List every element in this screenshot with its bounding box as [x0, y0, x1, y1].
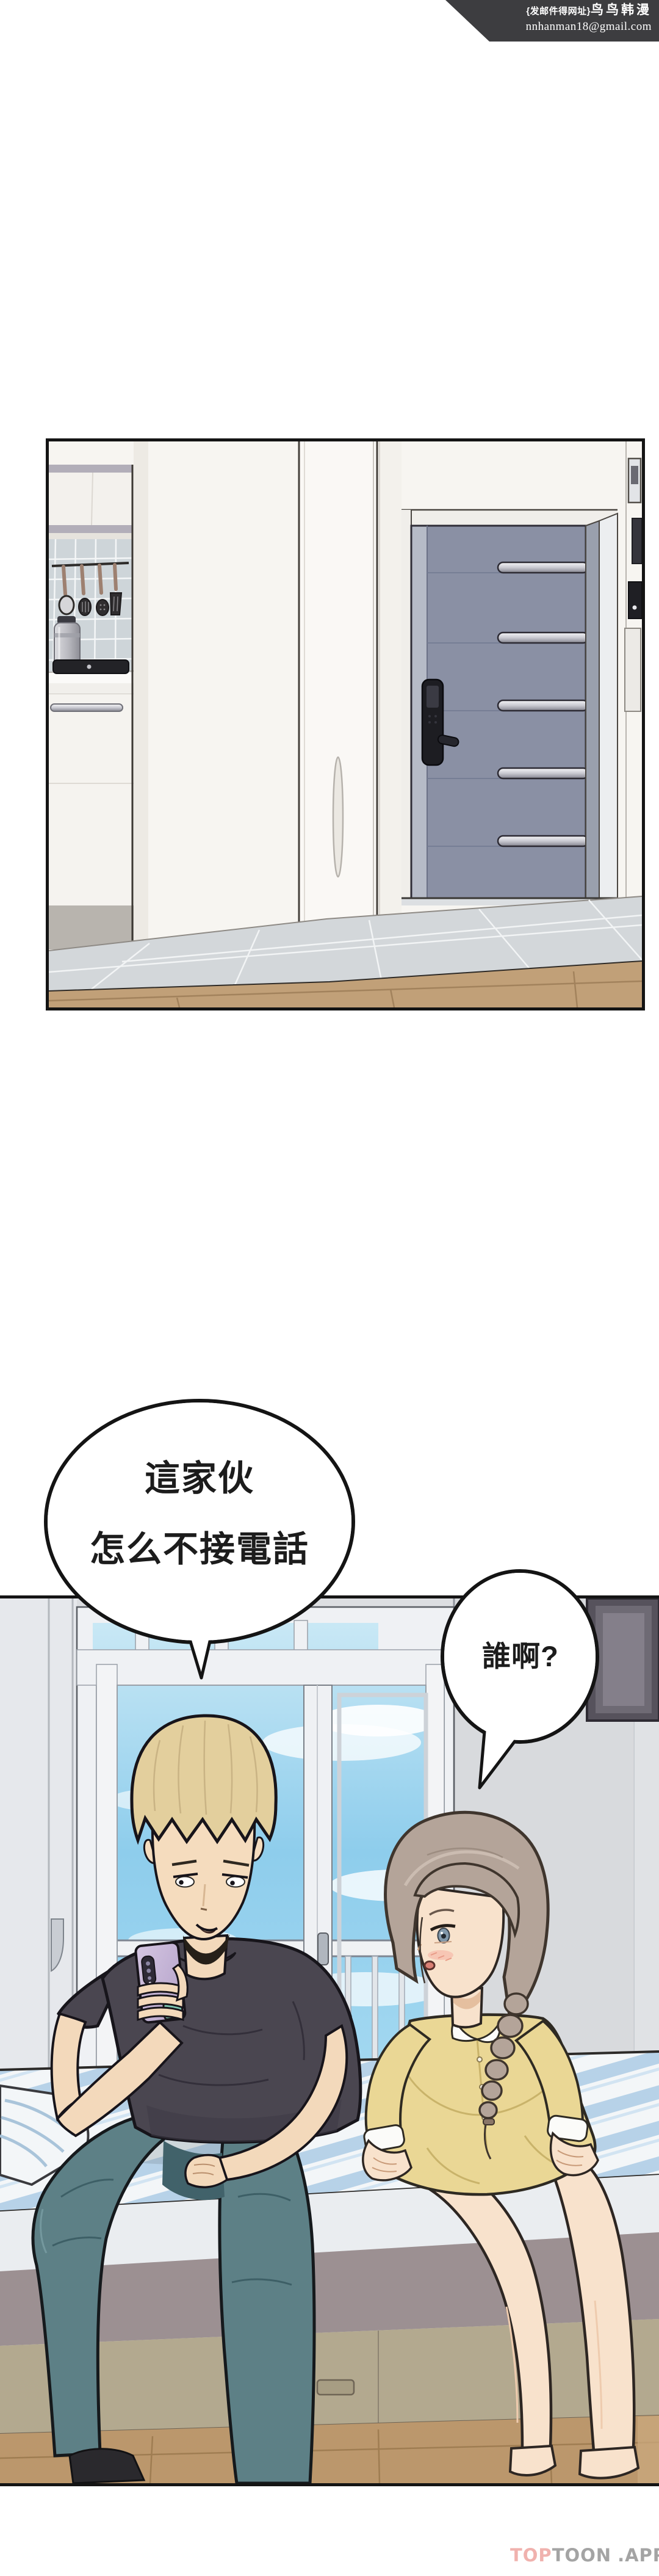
watermark-top: TOP — [510, 2545, 552, 2566]
speech-bubble-2-text: 誰啊? — [442, 1640, 599, 1673]
woman-mouth — [425, 1962, 434, 1970]
man-left-hand — [185, 2155, 227, 2188]
panel-kitchen-entry — [46, 438, 645, 1010]
panel-kitchen-entry-art — [49, 441, 642, 1007]
speech-bubble-2 — [434, 1565, 615, 1797]
woman-near-foot — [580, 2447, 638, 2478]
sliding-door-handle — [333, 757, 343, 877]
drawer-handle — [317, 2380, 354, 2395]
hair-tie — [483, 2119, 494, 2125]
entry-door — [402, 510, 618, 905]
watermark-toon: TOON — [552, 2545, 611, 2566]
bubble1-line2: 怎么不接電話 — [54, 1514, 345, 1585]
slotted-spoon-icon — [79, 598, 91, 615]
banner-site-name: 鸟鸟韩漫 — [591, 3, 652, 17]
kitchen-lower-cabinet — [49, 683, 134, 949]
control-unit-icon — [628, 582, 642, 619]
sliding-door — [300, 441, 402, 959]
window-latch — [318, 1933, 328, 1965]
banner-line1: {发邮件得网址}鸟鸟韩漫 — [526, 2, 652, 20]
kitchen — [49, 465, 134, 954]
ladle-icon — [59, 596, 74, 614]
wall-panel-icon — [632, 518, 642, 564]
speech-bubble-1-text: 這家伙 怎么不接電話 — [54, 1443, 345, 1585]
bubble1-line1: 這家伙 — [54, 1443, 345, 1514]
stove-top — [49, 660, 134, 683]
banner-prefix: {发邮件得网址} — [526, 6, 591, 16]
banner-email: nnhanman18@gmail.com — [526, 20, 652, 34]
spatula-icon — [110, 593, 121, 615]
skimmer-icon — [96, 600, 109, 615]
woman-far-foot — [510, 2446, 555, 2475]
toptoon-watermark: TOPTOON.APP — [510, 2545, 657, 2566]
watermark-app: .APP — [618, 2545, 659, 2566]
publisher-banner: {发邮件得网址}鸟鸟韩漫 nnhanman18@gmail.com — [445, 0, 659, 42]
comic-page: {发邮件得网址}鸟鸟韩漫 nnhanman18@gmail.com — [0, 0, 659, 2576]
